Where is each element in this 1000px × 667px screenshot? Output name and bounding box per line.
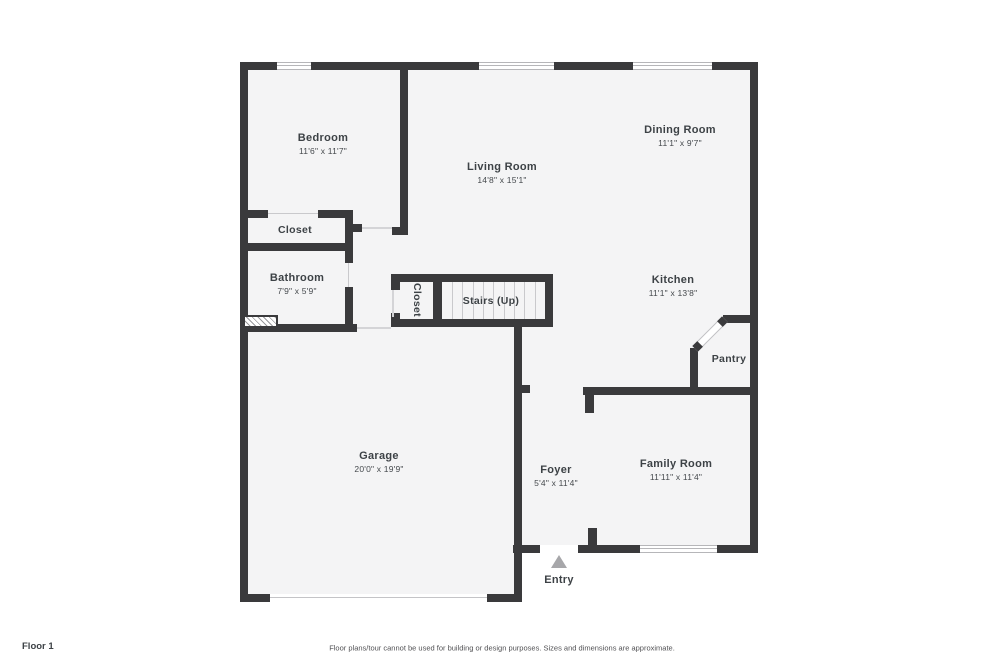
wall-closet-bottom: [240, 243, 353, 251]
room-label-kitchen: Kitchen 11'1" x 13'8": [649, 274, 698, 298]
room-dims: 7'9" x 5'9": [270, 286, 324, 296]
wall-bedroom-living: [400, 62, 408, 227]
wall-closet-stub: [353, 224, 362, 232]
room-label-family: Family Room 11'11" x 11'4": [640, 458, 712, 482]
stair-tread: [452, 282, 453, 319]
door-bedroom-hall: [362, 227, 392, 229]
entry-door-opening: [540, 545, 578, 553]
room-label-dining: Dining Room 11'1" x 9'7": [644, 124, 716, 148]
room-label-stair-closet: Closet: [411, 283, 423, 317]
room-dims: 11'1" x 13'8": [649, 288, 698, 298]
room-label-entry: Entry: [544, 574, 574, 586]
room-name: Entry: [544, 574, 574, 586]
wall-garage-bottom-left: [240, 594, 272, 602]
wall-pantry-top: [723, 315, 758, 323]
wall-bedroom-living-foot: [392, 227, 408, 235]
door-hall-garage: [357, 327, 391, 329]
wall-stairs-closet-divider: [433, 280, 442, 321]
window-bedroom: [277, 62, 311, 70]
room-name: Stairs (Up): [463, 295, 519, 307]
room-dims: 14'8" x 15'1": [467, 175, 537, 185]
room-name: Closet: [411, 283, 423, 317]
room-name: Bedroom: [298, 132, 348, 144]
room-label-living: Living Room 14'8" x 15'1": [467, 161, 537, 185]
wall-pantry-left: [690, 348, 698, 395]
wall-family-stub-top: [585, 395, 594, 413]
floor-number-label: Floor 1: [22, 641, 54, 652]
stair-tread: [535, 282, 536, 319]
room-label-bathroom: Bathroom 7'9" x 5'9": [270, 272, 324, 296]
room-dims: 11'11" x 11'4": [640, 472, 712, 482]
room-dims: 11'1" x 9'7": [644, 138, 716, 148]
room-name: Bathroom: [270, 272, 324, 284]
room-label-bedroom: Bedroom 11'6" x 11'7": [298, 132, 348, 156]
wall-stairs-right: [545, 274, 553, 327]
stair-tread: [524, 282, 525, 319]
room-name: Pantry: [712, 353, 746, 365]
wall-stairs-left-upper: [391, 274, 400, 290]
floor-area-garage: [244, 66, 517, 598]
disclaimer-text: Floor plans/tour cannot be used for buil…: [329, 644, 675, 653]
room-label-closet: Closet: [278, 224, 312, 236]
floor-plan: Bedroom 11'6" x 11'7" Living Room 14'8" …: [0, 0, 1000, 667]
room-dims: 5'4" x 11'4": [534, 478, 578, 488]
room-name: Family Room: [640, 458, 712, 470]
garage-door-opening: [270, 594, 487, 602]
wall-closet-right: [345, 210, 353, 251]
wall-stairs-bottom: [391, 319, 553, 327]
room-name: Closet: [278, 224, 312, 236]
room-name: Foyer: [534, 464, 578, 476]
wall-bathroom-right-upper: [345, 251, 353, 263]
shower-hatch: [243, 315, 278, 328]
window-dining: [633, 62, 712, 70]
door-bedroom-closet: [268, 210, 318, 218]
door-stair-closet: [392, 290, 394, 317]
wall-right: [750, 62, 758, 553]
room-label-foyer: Foyer 5'4" x 11'4": [534, 464, 578, 488]
room-name: Garage: [354, 450, 403, 462]
wall-left: [240, 62, 248, 602]
room-name: Living Room: [467, 161, 537, 173]
entry-arrow-icon: [551, 555, 567, 568]
room-dims: 11'6" x 11'7": [298, 146, 348, 156]
wall-family-stub-bottom: [588, 528, 597, 545]
room-label-pantry: Pantry: [712, 353, 746, 365]
wall-stairs-top: [391, 274, 553, 282]
wall-family-top: [583, 387, 758, 395]
room-name: Kitchen: [649, 274, 698, 286]
room-label-garage: Garage 20'0" x 19'9": [354, 450, 403, 474]
window-family: [640, 545, 717, 553]
room-name: Dining Room: [644, 124, 716, 136]
door-bathroom: [345, 263, 353, 287]
room-dims: 20'0" x 19'9": [354, 464, 403, 474]
window-living: [479, 62, 554, 70]
wall-garage-right: [514, 325, 522, 602]
room-label-stairs: Stairs (Up): [463, 295, 519, 307]
wall-kitchen-stub: [522, 385, 530, 393]
